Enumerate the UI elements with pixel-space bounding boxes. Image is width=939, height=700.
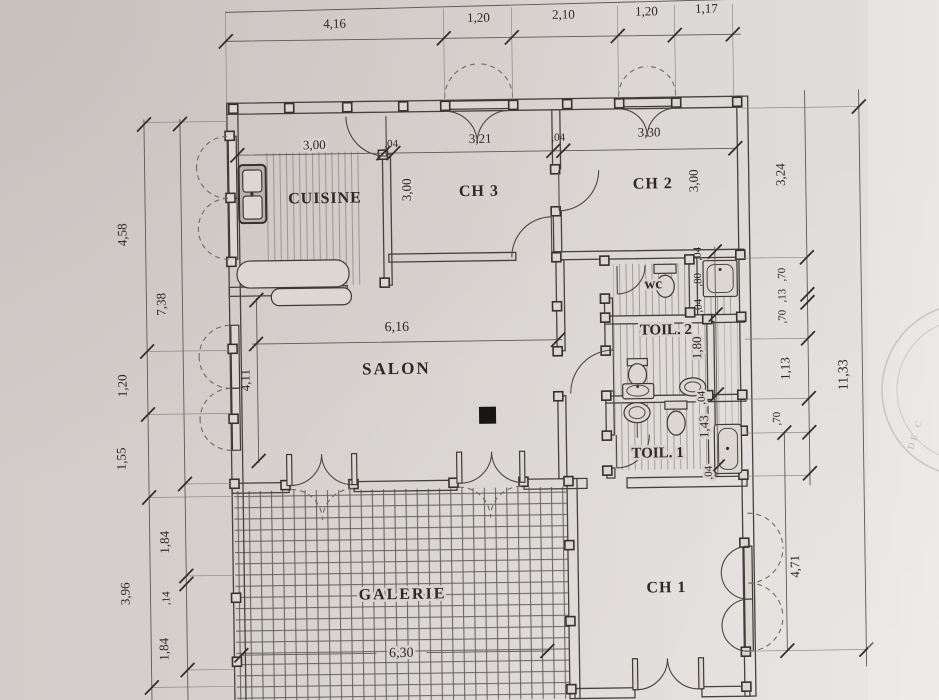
- label-toil2: TOIL. 2: [640, 322, 692, 339]
- dim-int-4: 3,30: [638, 124, 661, 139]
- dim-wc-2: ,04: [692, 298, 704, 312]
- kitchen-sink: [239, 165, 267, 223]
- dim-ri-2: ,13: [776, 288, 788, 302]
- dim-int-1: ,04: [384, 138, 398, 150]
- dim-top-0: 4,16: [323, 16, 346, 31]
- label-ch3: CH 3: [459, 183, 499, 201]
- dim-int-0: 3,00: [303, 137, 326, 152]
- window-top-2: [619, 98, 676, 107]
- paper-edge-light: [868, 0, 939, 700]
- kitchen-counter-1: [237, 260, 349, 289]
- dim-salon-width: 6,16: [384, 320, 409, 335]
- toilet2-wc: [627, 359, 647, 386]
- dim-ri-4: 1,13: [777, 357, 792, 380]
- window-ch1-right-1: [744, 546, 753, 599]
- dim-ch1-right: 4,71: [787, 555, 802, 578]
- dim-ch2-height: 3,00: [686, 169, 701, 192]
- window-left-1: [228, 136, 237, 198]
- dim-top-2: 2,10: [552, 7, 575, 22]
- label-ch2: CH 2: [633, 175, 673, 193]
- dim-lo-3: 3,96: [117, 582, 132, 605]
- dim-li-1: 1,84: [157, 530, 172, 553]
- dim-tc-1: ,04: [696, 390, 708, 404]
- window-left-2: [229, 198, 238, 259]
- label-salon: SALON: [362, 359, 431, 379]
- label-toil1: TOIL. 1: [631, 445, 683, 462]
- dim-tc-2: 1,43: [696, 415, 711, 438]
- dim-top-3: 1,20: [635, 3, 658, 18]
- dim-int-3: ,04: [551, 132, 565, 144]
- dim-ri-3: ,70: [777, 309, 789, 323]
- dim-tc-3: ,04: [703, 465, 715, 479]
- dim-ri-1: ,70: [776, 267, 788, 281]
- dim-int-2: 3,21: [469, 131, 492, 146]
- label-ch1: CH 1: [646, 579, 686, 597]
- dim-wc-1: ,80: [692, 272, 704, 286]
- dim-lo-1: 1,20: [114, 374, 129, 397]
- toilet2-basin: [623, 383, 654, 398]
- label-cuisine: CUISINE: [288, 189, 362, 207]
- window-ch1-right-2: [745, 599, 754, 651]
- passage-sink: [703, 260, 737, 296]
- dim-ri-0: 3,24: [773, 163, 788, 186]
- window-top-1: [445, 100, 513, 109]
- toilet1-wc: [665, 401, 687, 435]
- dim-salon-left: 4,11: [237, 369, 252, 391]
- dim-galerie-width: 6,30: [389, 646, 414, 661]
- label-wc: wc: [644, 276, 662, 292]
- dim-lo-2: 1,55: [113, 447, 128, 470]
- dim-tc-0: 1,80: [689, 336, 704, 359]
- dim-top-4: 1,17: [695, 1, 718, 16]
- label-galerie: GALERIE: [359, 585, 447, 603]
- dim-wc-0: ,04: [692, 246, 704, 260]
- dim-ch3-height: 3,00: [399, 178, 414, 201]
- dim-lo-0: 4,58: [114, 223, 129, 246]
- dim-li-3: 1,84: [156, 637, 171, 660]
- dim-top-1: 1,20: [467, 10, 490, 25]
- dim-li-2: ,14: [160, 591, 172, 605]
- dim-ro-0: 11,33: [836, 359, 851, 390]
- kitchen-counter-2: [271, 288, 351, 306]
- dim-ri-5: ,70: [771, 411, 783, 425]
- salon-column: [479, 407, 496, 424]
- dim-li-0: 7,38: [153, 293, 168, 316]
- floor-plan-drawing: DE C: [0, 0, 939, 700]
